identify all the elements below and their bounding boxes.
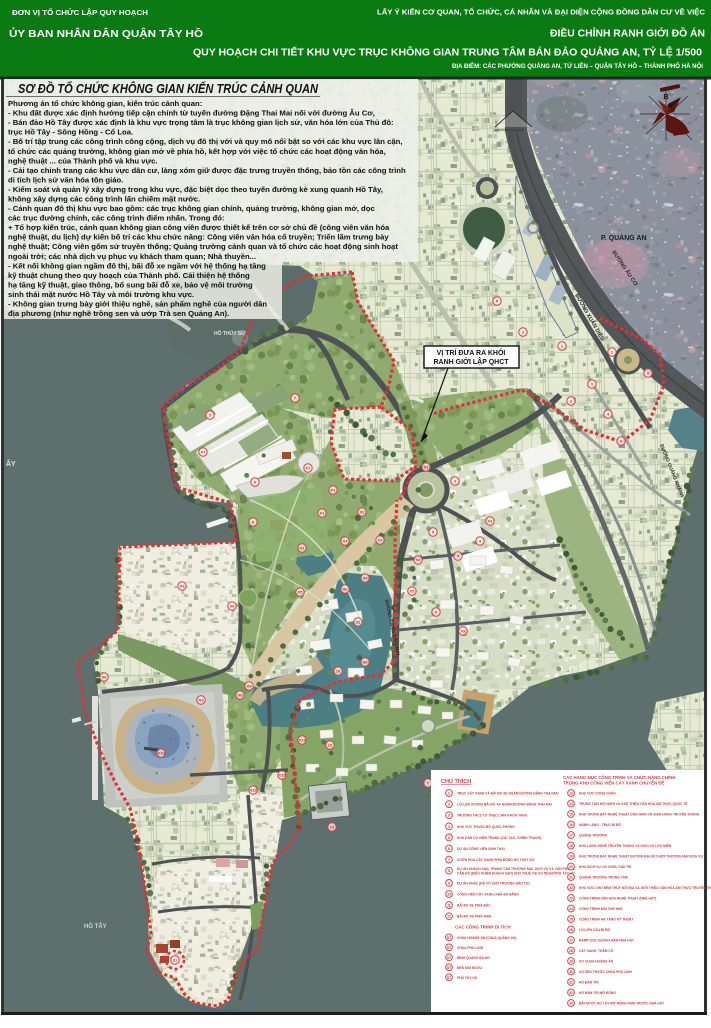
svg-text:BÃI ĐỖ XE PHÍA BẮC: BÃI ĐỖ XE PHÍA BẮC (457, 903, 491, 908)
svg-text:HÀNH LANG - TRỤC ĐI BỘ: HÀNH LANG - TRỤC ĐI BỘ (579, 822, 621, 827)
svg-text:PHỦ TÂY HỒ: PHỦ TÂY HỒ (457, 975, 478, 980)
svg-text:X9: X9 (180, 584, 186, 589)
svg-text:ÂY: ÂY (6, 459, 16, 468)
svg-text:các trục đường chính, các công: các trục đường chính, các công trình điể… (8, 214, 224, 223)
svg-text:CÁC CÔNG TRÌNH DI TÍCH: CÁC CÔNG TRÌNH DI TÍCH (455, 924, 511, 929)
svg-text:25: 25 (569, 918, 573, 922)
svg-text:DT: DT (447, 936, 451, 940)
svg-text:- Khu đất được xác định hướng: - Khu đất được xác định hướng tiếp cận c… (8, 109, 375, 118)
svg-text:P: P (496, 299, 499, 304)
svg-text:RANH GIỚI LẬP QHCT: RANH GIỚI LẬP QHCT (433, 357, 509, 366)
svg-text:KHU VỰC CỔNG CHÀO: KHU VỰC CỔNG CHÀO (579, 791, 616, 796)
svg-text:DỰ ÁN KHÁCH SẠN, TRUNG TÂM THƯ: DỰ ÁN KHÁCH SẠN, TRUNG TÂM THƯƠNG MẠI, D… (457, 866, 575, 871)
svg-text:DỰ ÁN KHÁC (ĐÃ CÓ CHỦ TRƯƠNG Đ: DỰ ÁN KHÁC (ĐÃ CÓ CHỦ TRƯƠNG ĐẦU TƯ) (457, 880, 530, 885)
svg-text:- Bán đảo Hồ Tây được xác định: - Bán đảo Hồ Tây được xác định là khu vự… (8, 118, 394, 127)
svg-text:X12: X12 (249, 788, 257, 793)
svg-text:X5: X5 (298, 590, 304, 595)
svg-text:2: 2 (448, 803, 450, 807)
svg-text:26: 26 (569, 928, 573, 932)
svg-text:10: 10 (447, 893, 451, 897)
svg-text:tổ chức các quảng trường, khôn: tổ chức các quảng trường, không gian mở … (8, 147, 386, 156)
svg-text:1: 1 (448, 792, 450, 796)
svg-text:X4: X4 (363, 576, 369, 581)
svg-text:SƠ ĐỒ TỔ CHỨC KHÔNG GIAN KIẾN: SƠ ĐỒ TỔ CHỨC KHÔNG GIAN KIẾN TRÚC CẢNH … (18, 81, 319, 96)
svg-text:DỰ ÁN CÔNG VIÊN SINH THÁI: DỰ ÁN CÔNG VIÊN SINH THÁI (457, 846, 505, 851)
svg-text:31: 31 (569, 981, 573, 985)
svg-text:RAMP DỐC XUỐNG HẦM NHÀ HÁT: RAMP DỐC XUỐNG HẦM NHÀ HÁT (579, 938, 634, 943)
svg-text:X5: X5 (410, 589, 416, 594)
svg-text:6: 6 (448, 847, 450, 851)
svg-text:X4: X4 (343, 539, 349, 544)
svg-text:Phương án tổ chức không gian,: Phương án tổ chức không gian, kiến trúc … (8, 99, 202, 108)
svg-text:KHU TRƯNG BÀY NGHỆ THUẬT DÂN G: KHU TRƯNG BÀY NGHỆ THUẬT DÂN GIAN VÀ GIA… (579, 812, 700, 817)
svg-text:23: 23 (569, 897, 573, 901)
svg-text:14: 14 (569, 802, 573, 806)
svg-text:12: 12 (447, 915, 451, 919)
svg-text:CÔNG TRÌNH VĂN HÓA NGHỆ THUẬT: CÔNG TRÌNH VĂN HÓA NGHỆ THUẬT (NHÀ HÁT) (579, 896, 656, 901)
svg-text:X13: X13 (298, 738, 306, 743)
svg-text:9: 9 (448, 881, 450, 885)
svg-text:trục Hồ Tây - Sông Hồng - Cổ L: trục Hồ Tây - Sông Hồng - Cổ Loa. (8, 128, 133, 137)
svg-text:- Kết nối không gian ngầm đô t: - Kết nối không gian ngầm đô thị, bãi đỗ… (8, 261, 266, 270)
svg-text:ĐỀN KIM NGƯU: ĐỀN KIM NGƯU (457, 965, 483, 970)
svg-text:P1: P1 (331, 488, 337, 493)
svg-text:AO SEN TRƯỚC CHÙA PHỔ LINH: AO SEN TRƯỚC CHÙA PHỔ LINH (579, 969, 632, 974)
svg-text:15: 15 (569, 813, 573, 817)
svg-text:X2: X2 (360, 510, 366, 515)
svg-text:CHÚ THÍCH: CHÚ THÍCH (441, 777, 471, 785)
svg-text:KHU TRƯNG BÀY NGHỆ THUẬT ĐƯƠNG: KHU TRƯNG BÀY NGHỆ THUẬT ĐƯƠNG ĐẠI KẾT H… (579, 854, 703, 859)
svg-text:KHU LÀNG NGHỀ TRUYỀN THỐNG VÀ: KHU LÀNG NGHỀ TRUYỀN THỐNG VÀ DỊCH VỤ LƯ… (579, 843, 672, 848)
svg-text:30: 30 (569, 970, 573, 974)
svg-text:22: 22 (569, 886, 573, 890)
svg-text:33: 33 (569, 1002, 573, 1006)
svg-text:ĐÌNH QUẢNG BÁ HỒ: ĐÌNH QUẢNG BÁ HỒ (457, 955, 490, 960)
svg-text:5: 5 (448, 836, 450, 840)
svg-text:nghệ thuật; Công viên gốm sứ t: nghệ thuật; Công viên gốm sứ truyền thốn… (8, 242, 398, 251)
svg-text:CHÙA PHỔ LINH: CHÙA PHỔ LINH (457, 945, 484, 950)
svg-text:28: 28 (569, 949, 573, 953)
svg-text:HỒ ĐẦM TRỊ: HỒ ĐẦM TRỊ (579, 980, 599, 985)
svg-text:31: 31 (356, 620, 361, 625)
svg-text:24: 24 (569, 907, 573, 911)
svg-text:4: 4 (448, 825, 450, 829)
svg-text:KHU VỰC THUỘC BỘ QUỐC PHÒNG: KHU VỰC THUỘC BỘ QUỐC PHÒNG (457, 824, 515, 829)
svg-text:16: 16 (569, 823, 573, 827)
svg-text:- Kiểm soát và quản lý xây dựn: - Kiểm soát và quản lý xây dựng trong kh… (8, 185, 383, 194)
svg-text:di tích lịch sử văn hóa tôn gi: di tích lịch sử văn hóa tôn giáo. (8, 175, 123, 184)
svg-text:+ Tổ hợp kiến trúc, cảnh quan: + Tổ hợp kiến trúc, cảnh quan không gian… (8, 223, 390, 232)
svg-text:TRƯỜNG THCS TƯ THỤC CHÌA KHÓA: TRƯỜNG THCS TƯ THỤC CHÌA KHÓA VÀNG (457, 813, 528, 818)
svg-text:X9: X9 (461, 629, 467, 634)
svg-text:CÔNG VIÊN CÂY XANH, NHÀ ĐA NĂN: CÔNG VIÊN CÂY XANH, NHÀ ĐA NĂNG (457, 892, 519, 897)
svg-text:DT: DT (447, 966, 451, 970)
svg-text:LẤY Ý KIẾN CƠ QUAN, TỔ CHỨC, C: LẤY Ý KIẾN CƠ QUAN, TỔ CHỨC, CÁ NHÂN VÀ … (377, 7, 705, 17)
svg-text:sinh thái mặt nước Hồ Tây và m: sinh thái mặt nước Hồ Tây và môi trường … (8, 290, 194, 299)
svg-text:11: 11 (447, 904, 451, 908)
svg-text:P2: P2 (306, 466, 312, 471)
svg-text:- Bố trí tập trung các công tr: - Bố trí tập trung các công trình công c… (8, 137, 403, 146)
svg-text:- Không gian trưng bày giới th: - Không gian trưng bày giới thiệu nghề, … (8, 300, 267, 309)
svg-text:X1: X1 (424, 465, 430, 470)
svg-text:18: 18 (569, 844, 573, 848)
svg-text:X6: X6 (343, 587, 349, 592)
svg-text:X6: X6 (230, 604, 236, 609)
svg-text:TRONG KHU CÔNG VIÊN CÂY XANH C: TRONG KHU CÔNG VIÊN CÂY XANH CHUYÊN ĐỀ (563, 781, 665, 786)
svg-text:- Cải tạo chỉnh trang các khu: - Cải tạo chỉnh trang các khu vực dân cư… (8, 166, 406, 175)
svg-text:QUẢNG TRƯỜNG: QUẢNG TRƯỜNG (579, 833, 608, 838)
svg-text:LỐI LÊN CẦU ĐI BỘ: LỐI LÊN CẦU ĐI BỘ (579, 927, 611, 932)
svg-text:DT: DT (447, 956, 451, 960)
svg-text:VỊ TRÍ ĐƯA RA KHỎI: VỊ TRÍ ĐƯA RA KHỎI (437, 348, 506, 357)
svg-text:KHU VỰC CHỢ ĐÊM THỦY NỘI ĐỊA V: KHU VỰC CHỢ ĐÊM THỦY NỘI ĐỊA VÀ GIỚI THI… (579, 885, 711, 890)
svg-text:KHU DÂN CƯ HIỆN TRẠNG (CẢI TẠO: KHU DÂN CƯ HIỆN TRẠNG (CẢI TẠO, CHỈNH TR… (457, 835, 541, 840)
svg-text:B: B (663, 94, 668, 101)
svg-text:TRUNG TÂM HỘI NGHỊ VÀ GIỚI THI: TRUNG TÂM HỘI NGHỊ VÀ GIỚI THIỆU VĂN HÓA… (579, 801, 688, 806)
svg-text:kỹ thuật chung theo quy hoạch: kỹ thuật chung theo quy hoạch của Thành … (8, 271, 250, 280)
svg-text:17: 17 (569, 834, 573, 838)
svg-text:19: 19 (328, 743, 333, 748)
svg-text:ĐƠN VỊ TỔ CHỨC LẬP QUY HOẠCH: ĐƠN VỊ TỔ CHỨC LẬP QUY HOẠCH (12, 8, 148, 17)
svg-text:CÁC HẠNG MỤC CÔNG TRÌNH VÀ CHỨ: CÁC HẠNG MỤC CÔNG TRÌNH VÀ CHỨC NĂNG CHÍ… (563, 775, 675, 780)
svg-text:X15: X15 (278, 773, 286, 778)
svg-text:BÃI NƯỚC HỒ TÂY MỞ RỘNG PHÍA T: BÃI NƯỚC HỒ TÂY MỞ RỘNG PHÍA TRƯỚC NHÀ H… (579, 1001, 664, 1006)
svg-text:21: 21 (569, 876, 573, 880)
svg-text:29: 29 (569, 960, 573, 964)
svg-text:VƯỜN HOA CÂY XANH PHÍA ĐÔNG HỒ: VƯỜN HOA CÂY XANH PHÍA ĐÔNG HỒ THỦY SỨ (457, 857, 535, 862)
svg-text:AO CHÙA HOẰNG ÂN: AO CHÙA HOẰNG ÂN (579, 959, 614, 964)
svg-text:N3: N3 (198, 698, 204, 703)
svg-text:CÂY XANH, THẢM CỎ: CÂY XANH, THẢM CỎ (579, 948, 614, 953)
svg-text:KHU DỊCH VỤ VUI CHƠI, GIẢI TRÍ: KHU DỊCH VỤ VUI CHƠI, GIẢI TRÍ (579, 864, 631, 869)
svg-text:P. QUẢNG AN: P. QUẢNG AN (601, 233, 647, 242)
svg-text:13: 13 (569, 792, 573, 796)
svg-text:X1: X1 (320, 511, 326, 516)
svg-text:LỐI LÊN XUỐNG BÃI ĐỖ XE NGẦM Đ: LỐI LÊN XUỐNG BÃI ĐỖ XE NGẦM ĐƯỜNG ĐẶNG … (457, 802, 552, 807)
svg-text:19: 19 (569, 855, 573, 859)
svg-text:DT: DT (447, 946, 451, 950)
svg-text:X8: X8 (238, 693, 244, 698)
svg-text:X7: X7 (201, 450, 207, 455)
svg-text:HỒ ĐẦM TRỊ MỞ RỘNG: HỒ ĐẦM TRỊ MỞ RỘNG (579, 990, 616, 995)
svg-text:HỒ TÂY: HỒ TÂY (84, 923, 107, 930)
svg-text:CÔNG TRÌNH HẠ TẦNG KỸ THUẬT: CÔNG TRÌNH HẠ TẦNG KỸ THUẬT (579, 917, 633, 922)
svg-text:20: 20 (569, 865, 573, 869)
svg-text:- Cảnh quan đô thị khu vực bao: - Cảnh quan đô thị khu vực bao gồm: các … (8, 204, 375, 213)
svg-text:TRỤC CÂY XANH VÀ BÃI ĐỖ XE NGẦ: TRỤC CÂY XANH VÀ BÃI ĐỖ XE NGẦM ĐƯỜNG ĐẶ… (457, 791, 559, 796)
svg-text:nghệ thuật ... của Thành phố: nghệ thuật ... của Thành phố và khu vực. (8, 156, 158, 165)
svg-text:DT: DT (447, 976, 451, 980)
svg-text:X10: X10 (157, 751, 165, 756)
svg-text:ỦY BAN NHÂN DÂN QUẬN TÂY HỒ: ỦY BAN NHÂN DÂN QUẬN TÂY HỒ (9, 27, 203, 40)
svg-text:X3: X3 (488, 519, 494, 524)
svg-text:8: 8 (448, 869, 450, 873)
svg-text:ngoài trời; các nhà dịch vụ ph: ngoài trời; các nhà dịch vụ phục vụ khác… (8, 252, 256, 261)
svg-text:32: 32 (569, 991, 573, 995)
svg-text:địa phương (như nghề trồng sen: địa phương (như nghề trồng sen và ướp Tr… (8, 309, 229, 318)
svg-text:CHÙA HOẰNG ÂN (CHÙA QUẢNG AN): CHÙA HOẰNG ÂN (CHÙA QUẢNG AN) (457, 935, 517, 940)
svg-text:7: 7 (448, 858, 450, 862)
svg-text:31: 31 (173, 958, 178, 963)
svg-text:QUY HOẠCH CHI TIẾT KHU VỰC TRỤ: QUY HOẠCH CHI TIẾT KHU VỰC TRỤC KHÔNG GI… (193, 46, 702, 59)
svg-text:16: 16 (336, 669, 341, 674)
svg-text:27: 27 (569, 939, 573, 943)
svg-text:X4: X4 (416, 558, 422, 563)
svg-text:X6: X6 (102, 675, 108, 680)
svg-text:N2: N2 (362, 660, 368, 665)
svg-text:không xây dựng các công trình: không xây dựng các công trình lấn chiếm … (8, 195, 200, 204)
svg-text:QUẢNG TRƯỜNG TRUNG TÂM: QUẢNG TRƯỜNG TRUNG TÂM (579, 875, 628, 880)
svg-text:X9: X9 (247, 684, 253, 689)
svg-text:ĐIỀU CHỈNH RANH GIỚI ĐỒ ÁN: ĐIỀU CHỈNH RANH GIỚI ĐỒ ÁN (550, 27, 705, 40)
svg-text:N1: N1 (299, 546, 305, 551)
svg-text:hạ tầng kỹ thuật, giao thông,: hạ tầng kỹ thuật, giao thông, bổ sung bã… (8, 281, 253, 290)
svg-text:19: 19 (330, 825, 335, 830)
svg-text:HỒ THỦY SỨ: HỒ THỦY SỨ (214, 330, 246, 337)
svg-text:nghệ thuật, du lịch) dự kiến b: nghệ thuật, du lịch) dự kiến bố trí các … (8, 233, 389, 242)
svg-text:X3: X3 (378, 538, 384, 543)
svg-text:3: 3 (448, 814, 450, 818)
svg-text:BÃI ĐỖ XE PHÍA NAM: BÃI ĐỖ XE PHÍA NAM (457, 914, 491, 919)
svg-text:CĂN HỘ (ĐIỀU KHIỂN KHÁCH SẠN): CĂN HỘ (ĐIỀU KHIỂN KHÁCH SẠN) CHO THUÊ T… (457, 870, 575, 875)
svg-text:CÔNG TRÌNH MÁI CHE NHẸ: CÔNG TRÌNH MÁI CHE NHẸ (579, 906, 623, 911)
